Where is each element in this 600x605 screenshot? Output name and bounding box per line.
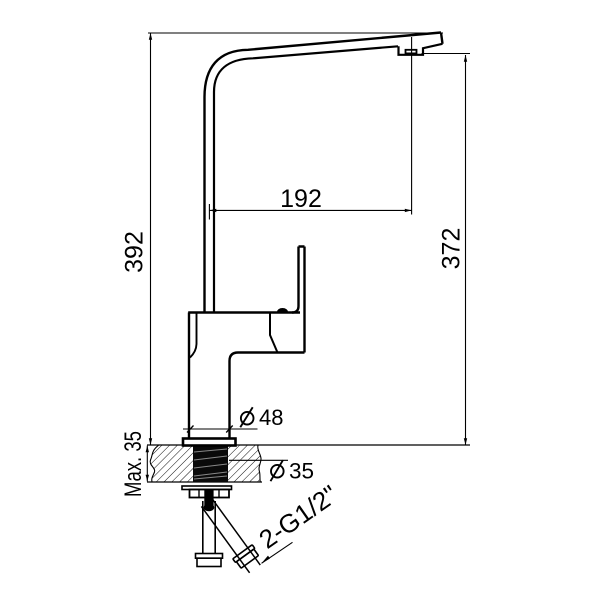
svg-text:392: 392	[121, 231, 149, 273]
svg-text:48: 48	[259, 405, 283, 430]
svg-text:192: 192	[280, 185, 322, 213]
svg-text:372: 372	[438, 228, 466, 270]
svg-text:Max. 35: Max. 35	[120, 431, 147, 497]
svg-text:35: 35	[289, 459, 314, 484]
